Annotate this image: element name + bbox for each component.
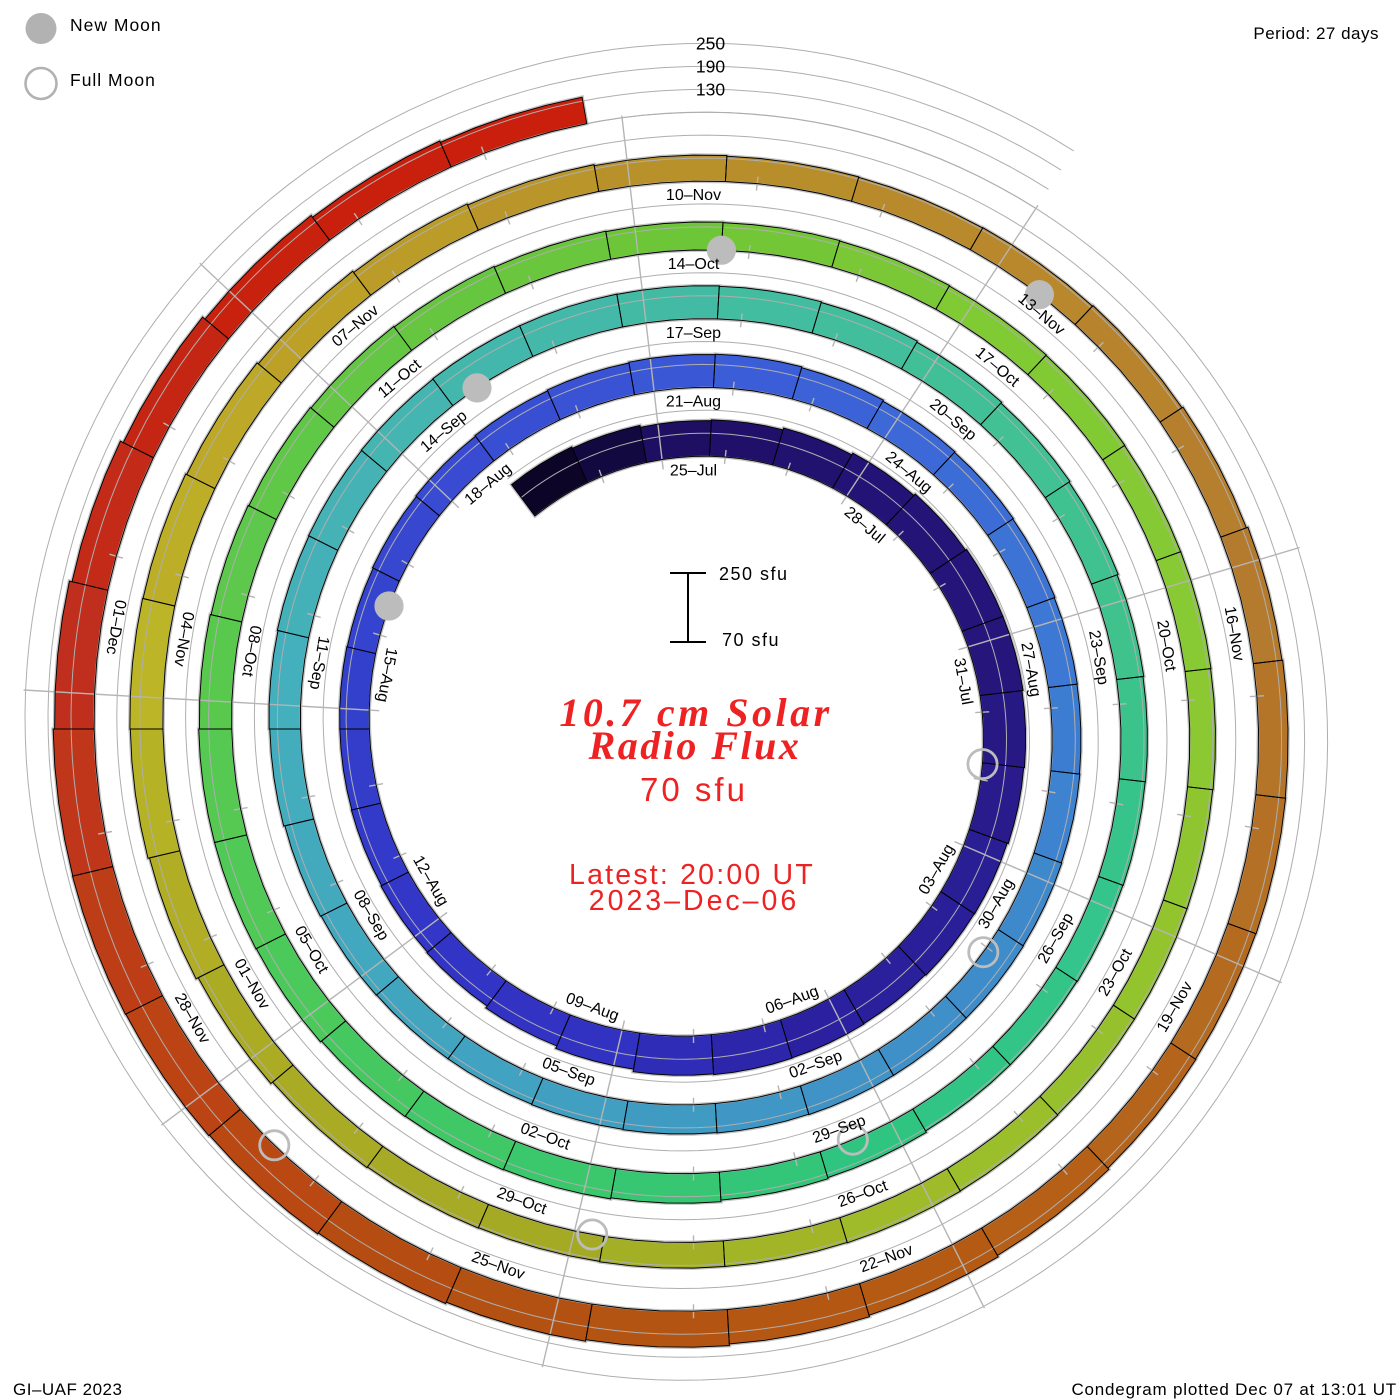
svg-text:Full Moon: Full Moon bbox=[70, 70, 156, 90]
svg-text:250 sfu: 250 sfu bbox=[719, 564, 789, 584]
svg-text:Condegram plotted Dec 07 at 13: Condegram plotted Dec 07 at 13:01 UT bbox=[1071, 1380, 1397, 1399]
svg-text:25–Jul: 25–Jul bbox=[670, 462, 717, 479]
svg-text:Period: 27 days: Period: 27 days bbox=[1253, 24, 1379, 43]
svg-text:70 sfu: 70 sfu bbox=[722, 630, 780, 650]
svg-text:190: 190 bbox=[696, 56, 725, 76]
svg-text:GI–UAF 2023: GI–UAF 2023 bbox=[13, 1380, 122, 1399]
svg-text:New Moon: New Moon bbox=[70, 15, 162, 35]
svg-text:250: 250 bbox=[696, 33, 725, 53]
svg-text:21–Aug: 21–Aug bbox=[666, 394, 721, 411]
svg-text:70 sfu: 70 sfu bbox=[640, 771, 748, 808]
svg-text:10–Nov: 10–Nov bbox=[666, 187, 721, 204]
svg-text:17–Sep: 17–Sep bbox=[666, 325, 721, 342]
svg-text:2023–Dec–06: 2023–Dec–06 bbox=[589, 885, 800, 917]
svg-text:14–Oct: 14–Oct bbox=[668, 256, 720, 273]
svg-text:130: 130 bbox=[696, 79, 725, 99]
svg-text:Radio Flux: Radio Flux bbox=[588, 723, 802, 768]
